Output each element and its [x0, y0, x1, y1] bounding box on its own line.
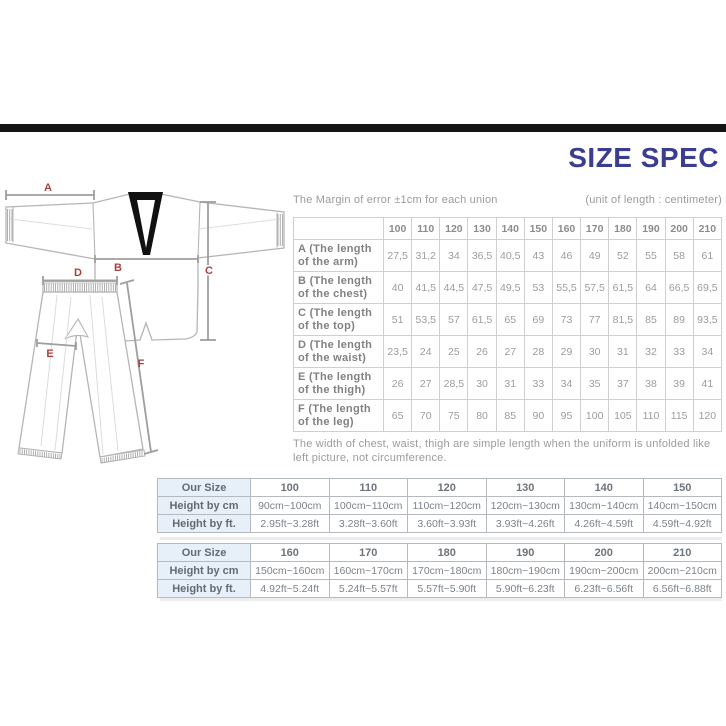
size-cell: 180	[408, 544, 487, 562]
size-cell: 210	[643, 544, 722, 562]
size-cell: 190	[486, 544, 565, 562]
spec-value-cell: 57,5	[581, 272, 609, 304]
spec-value-cell: 53	[524, 272, 552, 304]
spec-value-cell: 26	[384, 368, 412, 400]
spec-value-cell: 90	[524, 400, 552, 432]
spec-value-cell: 75	[440, 400, 468, 432]
size-cell: 5.24ft~5.57ft	[329, 580, 408, 598]
size-cell: 180cm~190cm	[486, 562, 565, 580]
spec-value-cell: 53,5	[412, 304, 440, 336]
spec-col-header: 180	[609, 218, 637, 240]
size-cell: 3.60ft~3.93ft	[408, 515, 487, 533]
size-cell: 120	[408, 479, 487, 497]
size-cell: 200	[565, 544, 644, 562]
spec-col-header: 130	[468, 218, 496, 240]
spec-value-cell: 31	[496, 368, 524, 400]
spec-col-header: 140	[496, 218, 524, 240]
size-table-2: Our Size160170180190200210Height by cm15…	[157, 543, 722, 598]
size-spec-page: SIZE SPEC	[0, 0, 726, 726]
spec-value-cell: 80	[468, 400, 496, 432]
spec-row-label: E (The lengthof the thigh)	[294, 368, 384, 400]
spec-value-cell: 95	[552, 400, 580, 432]
spec-value-cell: 55	[637, 240, 665, 272]
size-row-label: Height by cm	[158, 562, 251, 580]
spec-value-cell: 51	[384, 304, 412, 336]
table-shadow	[160, 598, 722, 601]
label-f: F	[138, 358, 145, 370]
spec-value-cell: 41,5	[412, 272, 440, 304]
spec-col-header: 170	[581, 218, 609, 240]
label-e: E	[46, 348, 53, 360]
size-cell: 3.93ft~4.26ft	[486, 515, 565, 533]
spec-value-cell: 38	[637, 368, 665, 400]
spec-row-label: A (The lengthof the arm)	[294, 240, 384, 272]
size-cell: 150	[643, 479, 722, 497]
size-cell: 200cm~210cm	[643, 562, 722, 580]
spec-value-cell: 65	[496, 304, 524, 336]
spec-value-cell: 57	[440, 304, 468, 336]
spec-value-cell: 115	[665, 400, 693, 432]
spec-value-cell: 30	[581, 336, 609, 368]
spec-corner-cell	[294, 218, 384, 240]
size-cell: 190cm~200cm	[565, 562, 644, 580]
size-cell: 170cm~180cm	[408, 562, 487, 580]
spec-row-label: B (The lengthof the chest)	[294, 272, 384, 304]
spec-value-cell: 49	[581, 240, 609, 272]
label-c: C	[205, 265, 213, 277]
spec-value-cell: 61	[693, 240, 721, 272]
spec-value-cell: 33	[524, 368, 552, 400]
spec-col-header: 210	[693, 218, 721, 240]
size-cell: 3.28ft~3.60ft	[329, 515, 408, 533]
spec-value-cell: 100	[581, 400, 609, 432]
size-cell: 100cm~110cm	[329, 497, 408, 515]
size-cell: 4.59ft~4.92ft	[643, 515, 722, 533]
spec-value-cell: 31,2	[412, 240, 440, 272]
size-row-label: Our Size	[158, 544, 251, 562]
spec-table: 100110120130140150160170180190200210A (T…	[293, 217, 722, 432]
size-cell: 130	[486, 479, 565, 497]
spec-value-cell: 27	[496, 336, 524, 368]
spec-value-cell: 40,5	[496, 240, 524, 272]
spec-col-header: 160	[552, 218, 580, 240]
spec-value-cell: 27,5	[384, 240, 412, 272]
spec-col-header: 100	[384, 218, 412, 240]
spec-value-cell: 23,5	[384, 336, 412, 368]
size-cell: 140cm~150cm	[643, 497, 722, 515]
spec-row-label: F (The lengthof the leg)	[294, 400, 384, 432]
size-cell: 170	[329, 544, 408, 562]
page-title: SIZE SPEC	[568, 142, 719, 174]
size-cell: 130cm~140cm	[565, 497, 644, 515]
size-cell: 110	[329, 479, 408, 497]
spec-value-cell: 33	[665, 336, 693, 368]
size-cell: 150cm~160cm	[251, 562, 330, 580]
size-cell: 4.92ft~5.24ft	[251, 580, 330, 598]
spec-value-cell: 85	[496, 400, 524, 432]
spec-col-header: 190	[637, 218, 665, 240]
spec-row-label: C (The lengthof the top)	[294, 304, 384, 336]
spec-value-cell: 105	[609, 400, 637, 432]
size-cell: 6.23ft~6.56ft	[565, 580, 644, 598]
spec-value-cell: 28,5	[440, 368, 468, 400]
size-cell: 5.90ft~6.23ft	[486, 580, 565, 598]
spec-value-cell: 39	[665, 368, 693, 400]
spec-col-header: 200	[665, 218, 693, 240]
spec-value-cell: 25	[440, 336, 468, 368]
size-cell: 160cm~170cm	[329, 562, 408, 580]
size-row-label: Height by ft.	[158, 580, 251, 598]
spec-value-cell: 34	[552, 368, 580, 400]
spec-value-cell: 52	[609, 240, 637, 272]
spec-value-cell: 26	[468, 336, 496, 368]
spec-value-cell: 69	[524, 304, 552, 336]
spec-value-cell: 85	[637, 304, 665, 336]
spec-value-cell: 89	[665, 304, 693, 336]
spec-value-cell: 93,5	[693, 304, 721, 336]
spec-value-cell: 44,5	[440, 272, 468, 304]
spec-row-label: D (The lengthof the waist)	[294, 336, 384, 368]
size-cell: 160	[251, 544, 330, 562]
spec-value-cell: 30	[468, 368, 496, 400]
size-cell: 90cm~100cm	[251, 497, 330, 515]
spec-value-cell: 69,5	[693, 272, 721, 304]
spec-value-cell: 34	[693, 336, 721, 368]
uniform-diagram: A B C D E F	[0, 155, 290, 470]
spec-value-cell: 40	[384, 272, 412, 304]
top-divider-bar	[0, 124, 726, 132]
size-table-1: Our Size100110120130140150Height by cm90…	[157, 478, 722, 533]
spec-value-cell: 27	[412, 368, 440, 400]
spec-col-header: 120	[440, 218, 468, 240]
spec-value-cell: 77	[581, 304, 609, 336]
spec-col-header: 150	[524, 218, 552, 240]
spec-value-cell: 24	[412, 336, 440, 368]
spec-value-cell: 81,5	[609, 304, 637, 336]
size-cell: 110cm~120cm	[408, 497, 487, 515]
spec-value-cell: 66,5	[665, 272, 693, 304]
spec-value-cell: 35	[581, 368, 609, 400]
spec-value-cell: 61,5	[468, 304, 496, 336]
spec-value-cell: 61,5	[609, 272, 637, 304]
spec-footnote: The width of chest, waist, thigh are sim…	[293, 437, 726, 465]
size-cell: 120cm~130cm	[486, 497, 565, 515]
spec-value-cell: 28	[524, 336, 552, 368]
label-d: D	[74, 267, 82, 279]
spec-value-cell: 65	[384, 400, 412, 432]
size-row-label: Our Size	[158, 479, 251, 497]
size-cell: 5.57ft~5.90ft	[408, 580, 487, 598]
table-shadow	[160, 537, 722, 540]
unit-note: (unit of length : centimeter)	[585, 194, 722, 206]
size-row-label: Height by cm	[158, 497, 251, 515]
size-cell: 2.95ft~3.28ft	[251, 515, 330, 533]
size-cell: 4.26ft~4.59ft	[565, 515, 644, 533]
size-cell: 140	[565, 479, 644, 497]
spec-value-cell: 49,5	[496, 272, 524, 304]
spec-value-cell: 37	[609, 368, 637, 400]
margin-of-error-note: The Margin of error ±1cm for each union	[293, 194, 498, 206]
spec-value-cell: 29	[552, 336, 580, 368]
spec-value-cell: 120	[693, 400, 721, 432]
spec-value-cell: 110	[637, 400, 665, 432]
spec-col-header: 110	[412, 218, 440, 240]
size-cell: 6.56ft~6.88ft	[643, 580, 722, 598]
size-row-label: Height by ft.	[158, 515, 251, 533]
spec-value-cell: 64	[637, 272, 665, 304]
spec-value-cell: 55,5	[552, 272, 580, 304]
spec-value-cell: 46	[552, 240, 580, 272]
spec-value-cell: 73	[552, 304, 580, 336]
size-cell: 100	[251, 479, 330, 497]
spec-value-cell: 32	[637, 336, 665, 368]
spec-value-cell: 43	[524, 240, 552, 272]
spec-value-cell: 36,5	[468, 240, 496, 272]
label-b: B	[114, 262, 122, 274]
label-a: A	[44, 182, 52, 194]
spec-value-cell: 47,5	[468, 272, 496, 304]
spec-value-cell: 34	[440, 240, 468, 272]
spec-value-cell: 58	[665, 240, 693, 272]
spec-value-cell: 41	[693, 368, 721, 400]
spec-value-cell: 70	[412, 400, 440, 432]
spec-value-cell: 31	[609, 336, 637, 368]
